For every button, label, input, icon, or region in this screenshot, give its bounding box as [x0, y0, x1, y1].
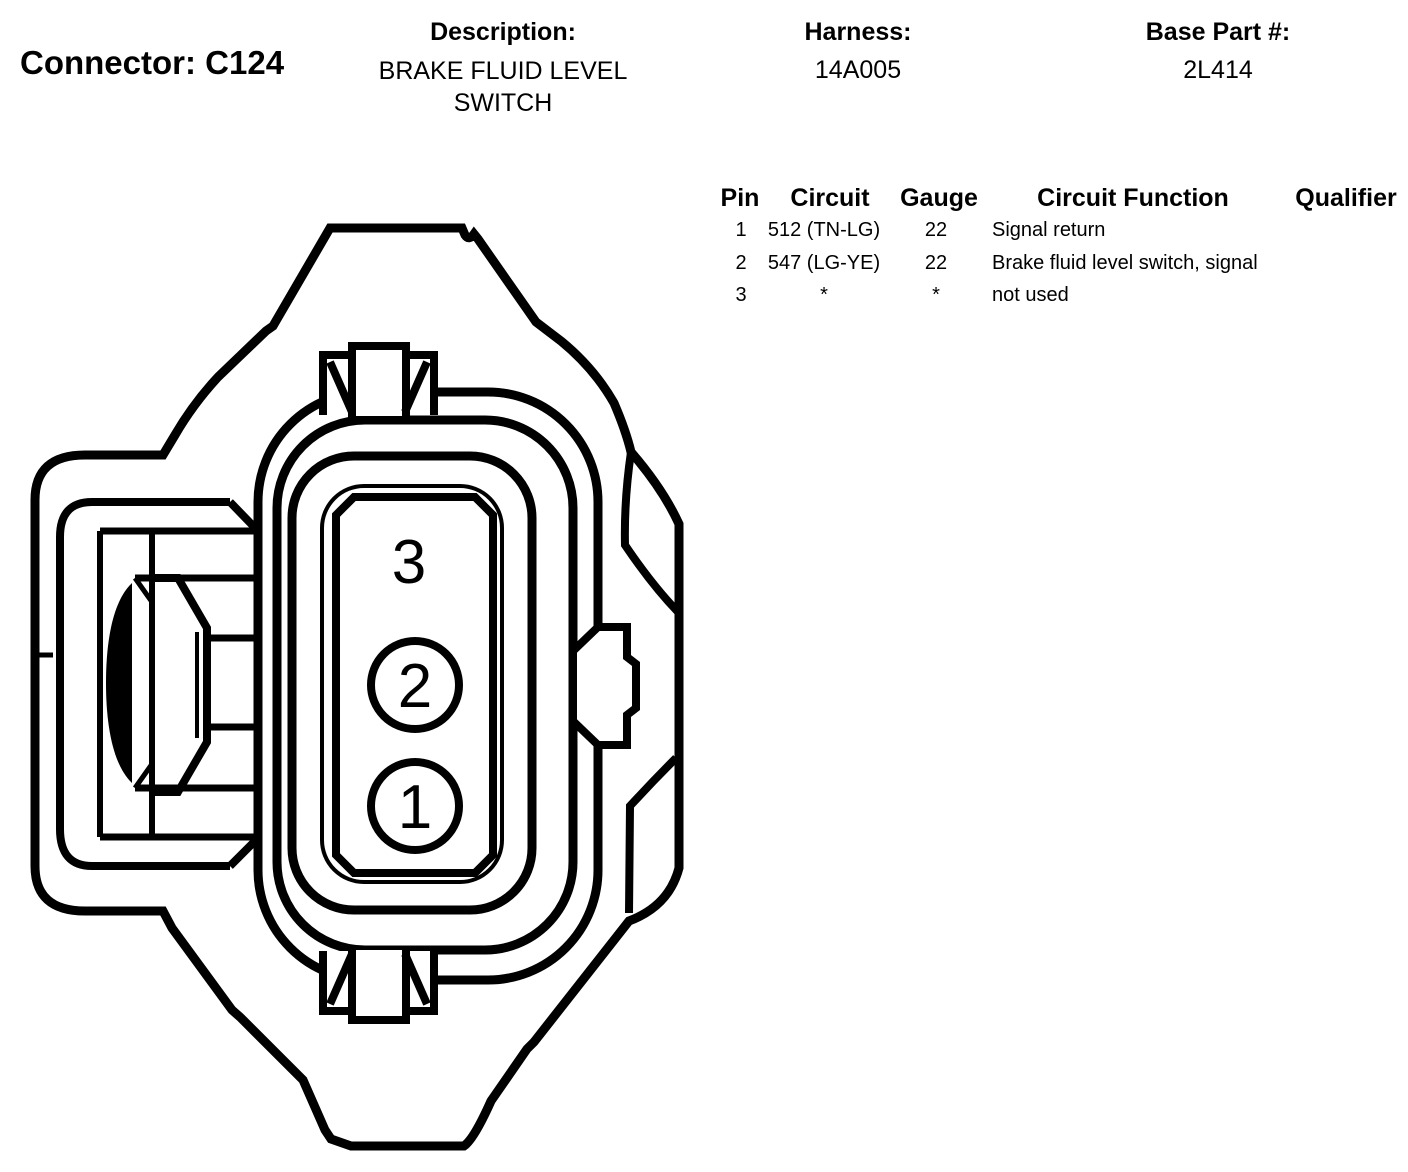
- right-keying-tab: [573, 627, 636, 745]
- connector-pinout-page: { "header": { "connector_label": "Connec…: [0, 0, 1408, 1172]
- pin-3-label: 3: [392, 528, 426, 597]
- bottom-keying-tab: [323, 946, 434, 1020]
- top-keying-tab: [323, 346, 434, 420]
- pin-2-label: 2: [398, 652, 432, 721]
- pin-1-label: 1: [398, 773, 432, 842]
- connector-diagram: 3 2 1: [0, 0, 1408, 1172]
